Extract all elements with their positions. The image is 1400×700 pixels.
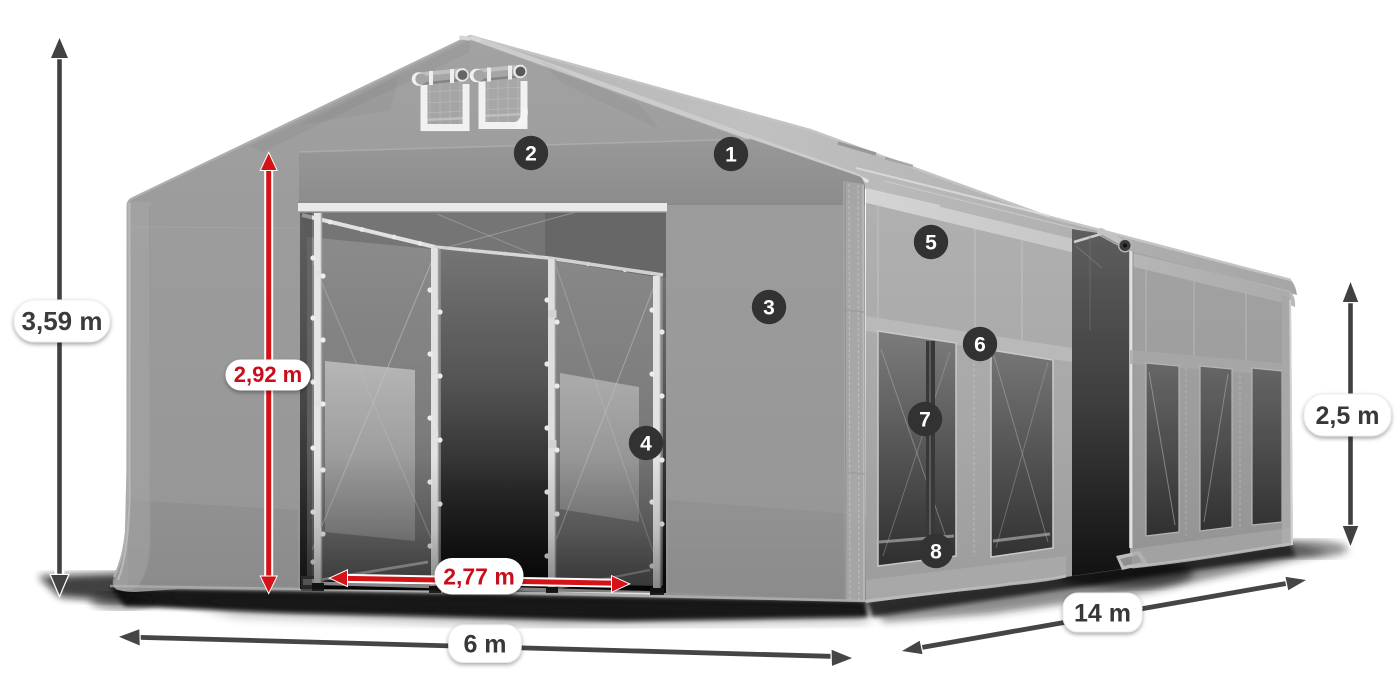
svg-text:6: 6 (974, 334, 986, 357)
svg-text:2,5 m: 2,5 m (1316, 402, 1380, 430)
svg-text:2: 2 (525, 143, 537, 166)
svg-text:5: 5 (925, 232, 937, 255)
svg-text:2,92 m: 2,92 m (234, 362, 303, 387)
svg-text:2,77 m: 2,77 m (443, 564, 515, 590)
svg-text:3: 3 (763, 297, 775, 320)
svg-text:3,59 m: 3,59 m (22, 306, 103, 336)
svg-text:1: 1 (725, 144, 737, 167)
svg-text:4: 4 (640, 433, 652, 456)
svg-text:14 m: 14 m (1074, 600, 1131, 628)
svg-text:6 m: 6 m (463, 631, 506, 659)
svg-text:7: 7 (919, 409, 931, 432)
svg-text:8: 8 (930, 541, 942, 564)
